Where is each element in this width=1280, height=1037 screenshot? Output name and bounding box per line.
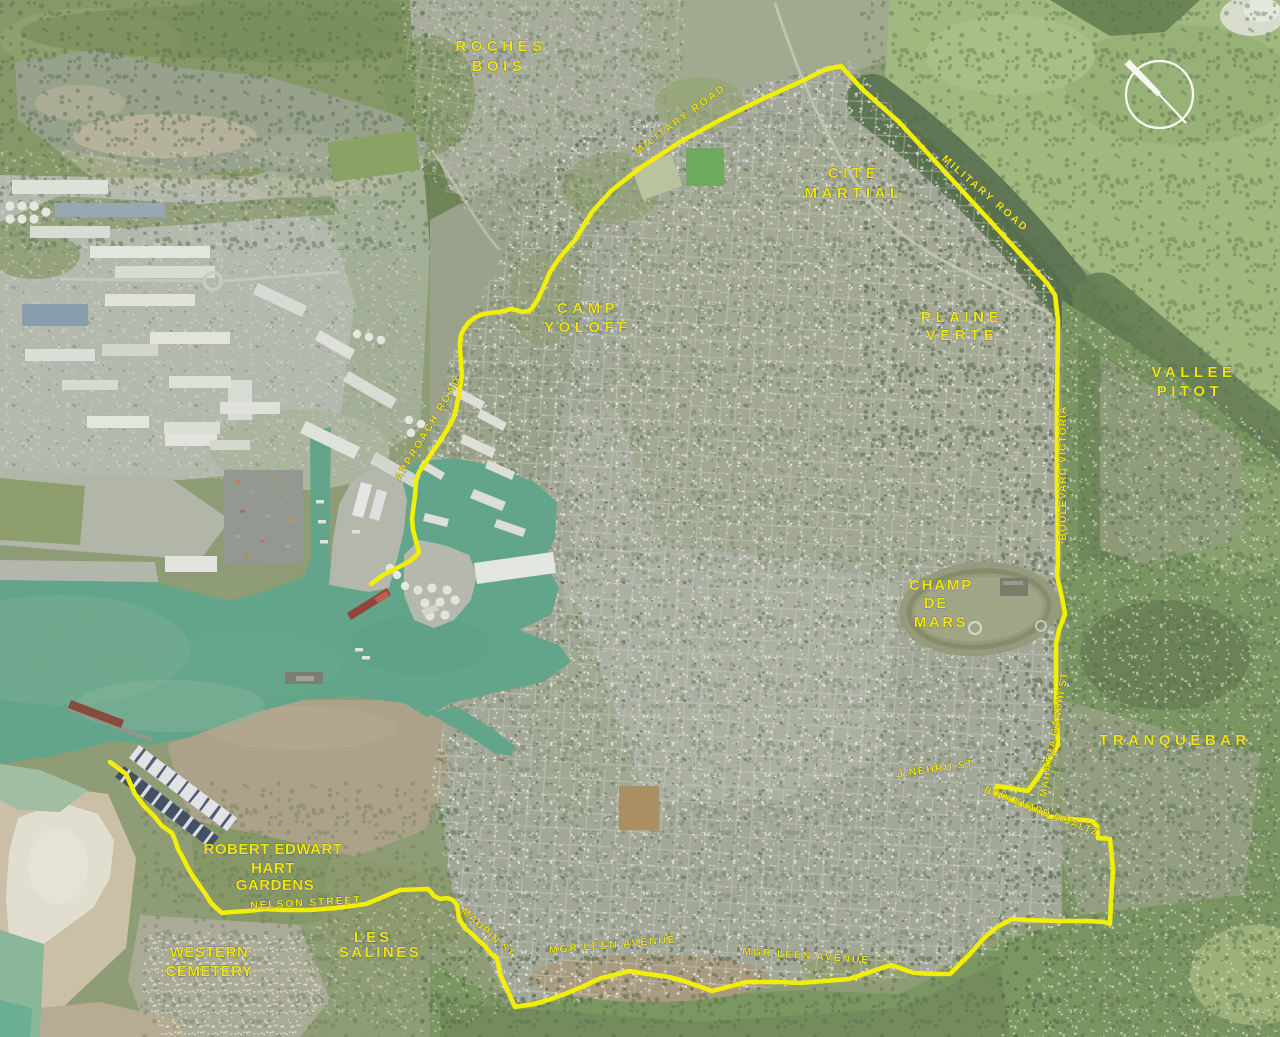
svg-text:YOLOFF: YOLOFF [544, 319, 632, 336]
svg-text:ROCHES: ROCHES [455, 38, 546, 55]
svg-text:VALLEE: VALLEE [1151, 364, 1236, 381]
svg-text:MARS: MARS [914, 614, 968, 631]
svg-text:ROBERT EDWART: ROBERT EDWART [204, 841, 343, 858]
svg-text:PITOT: PITOT [1157, 383, 1223, 400]
svg-text:CHAMP: CHAMP [909, 577, 973, 594]
svg-text:DE: DE [924, 595, 948, 612]
svg-text:SALINES: SALINES [339, 944, 422, 961]
svg-text:VERTE: VERTE [926, 327, 999, 344]
svg-text:PLAINE: PLAINE [921, 309, 1003, 326]
svg-text:BOIS: BOIS [472, 58, 527, 75]
svg-text:CITE: CITE [828, 165, 880, 182]
svg-text:CAMP: CAMP [557, 300, 619, 317]
svg-text:CEMETERY: CEMETERY [166, 963, 253, 980]
svg-text:WESTERN: WESTERN [170, 944, 249, 961]
svg-text:MARTIAL: MARTIAL [805, 185, 904, 202]
svg-text:HART: HART [251, 860, 295, 877]
svg-text:TRANQUEBAR: TRANQUEBAR [1099, 732, 1251, 749]
svg-text:GARDENS: GARDENS [236, 877, 315, 894]
svg-text:BOULEVARD VICTORIA: BOULEVARD VICTORIA [1058, 406, 1069, 541]
